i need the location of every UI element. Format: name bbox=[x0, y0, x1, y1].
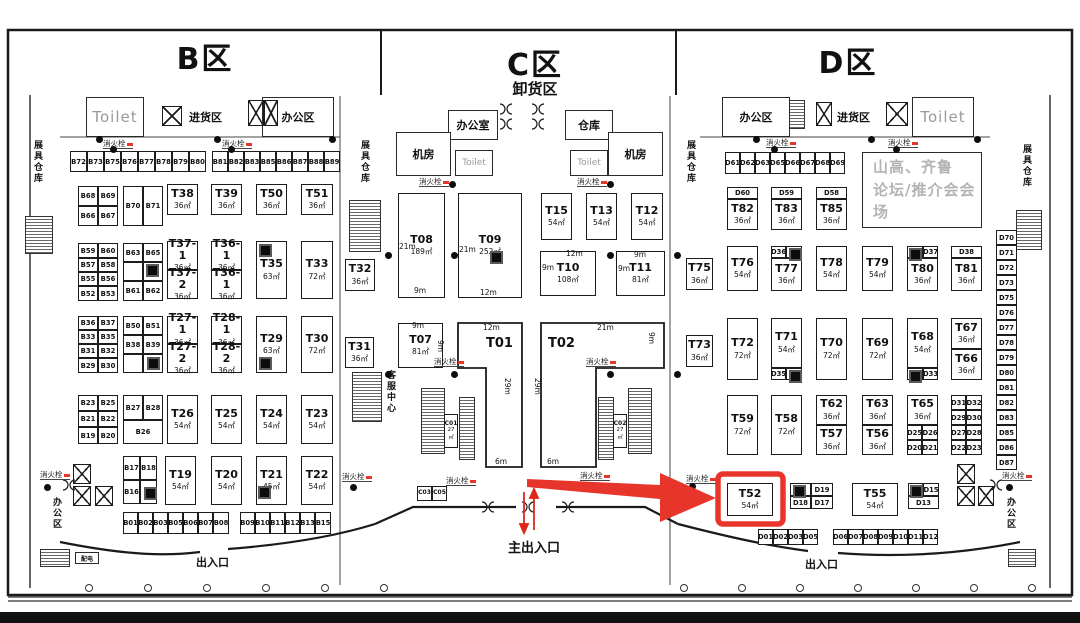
cell-D77: D77 bbox=[996, 320, 1017, 335]
dim-label: 21m bbox=[399, 242, 416, 251]
booth-T65: T6536㎡ bbox=[907, 395, 938, 425]
fire-hydrant-label: 消火栓 bbox=[342, 472, 372, 482]
stairs-hatch bbox=[421, 388, 445, 454]
booth-id: T13 bbox=[590, 205, 613, 217]
booth-id: T59 bbox=[731, 413, 754, 425]
dim-label: 12m bbox=[566, 249, 583, 258]
booth-size: 36㎡ bbox=[174, 200, 191, 211]
booth-size: 36㎡ bbox=[823, 411, 840, 422]
stairs-hatch bbox=[352, 372, 382, 422]
booth-T26: T2654㎡ bbox=[167, 395, 198, 444]
fire-hydrant-label: 消火栓 bbox=[40, 470, 70, 480]
cell-B68: B68 bbox=[78, 186, 98, 206]
cell-D38: D38 bbox=[951, 246, 982, 258]
elevator-icon bbox=[886, 102, 908, 126]
elevator-icon bbox=[248, 100, 264, 126]
cell-B36: B36 bbox=[78, 316, 98, 330]
booth-size: 72㎡ bbox=[778, 426, 795, 437]
booth-size: 36㎡ bbox=[308, 200, 325, 211]
booth-id: T58 bbox=[775, 413, 798, 425]
elevator-icon bbox=[162, 106, 182, 126]
booth-T28-2: T28-236㎡ bbox=[211, 344, 242, 373]
booth-T85: T8536㎡ bbox=[816, 199, 847, 230]
booth-size: 36㎡ bbox=[218, 291, 235, 302]
cell-B70: B70 bbox=[123, 186, 143, 226]
booth-id: T19 bbox=[169, 469, 192, 481]
cell-B12: B12 bbox=[285, 512, 300, 534]
cell-B59: B59 bbox=[78, 243, 98, 258]
booth-size: 36㎡ bbox=[734, 215, 751, 226]
main-entrance-label: 主出入口 bbox=[508, 537, 560, 556]
column-dot bbox=[674, 371, 681, 378]
cell-D01: D01 bbox=[758, 529, 773, 545]
booth-id: T30 bbox=[306, 333, 329, 345]
room-仓库: 仓库 bbox=[565, 110, 613, 140]
elevator-icon bbox=[816, 102, 832, 126]
cell-D58: D58 bbox=[816, 187, 847, 199]
booth-id: T82 bbox=[731, 203, 754, 215]
cell-D08: D08 bbox=[863, 529, 878, 545]
booth-T39: T3936㎡ bbox=[211, 184, 242, 215]
cell-B29: B29 bbox=[78, 358, 98, 373]
booth-size: 54㎡ bbox=[914, 344, 931, 355]
column-dot bbox=[451, 371, 458, 378]
booth-size: 54㎡ bbox=[218, 420, 235, 431]
cell-D25: D25 bbox=[907, 425, 922, 440]
booth-id: T09 bbox=[479, 234, 502, 246]
stairs-hatch bbox=[1008, 549, 1036, 567]
vertical-label-展具仓库: 展具仓库 bbox=[1020, 144, 1033, 188]
booth-T75: T7536㎡ bbox=[686, 258, 713, 290]
cell-B89: B89 bbox=[324, 151, 340, 172]
cell-D65: D65 bbox=[770, 152, 785, 174]
fire-cabinet-icon bbox=[909, 370, 922, 383]
booth-size: 54㎡ bbox=[866, 500, 883, 511]
dim-label: 9m bbox=[414, 286, 426, 295]
fire-cabinet-icon bbox=[490, 251, 503, 264]
booth-size: 108㎡ bbox=[557, 274, 579, 285]
booth-id: T80 bbox=[911, 263, 934, 275]
column-dot bbox=[385, 252, 392, 259]
cell-B62: B62 bbox=[143, 281, 163, 301]
cell-B26: B26 bbox=[123, 420, 163, 444]
booth-id: T76 bbox=[731, 257, 754, 269]
booth-id: T11 bbox=[629, 262, 652, 274]
column-dot bbox=[771, 146, 778, 153]
booth-T66: T6636㎡ bbox=[951, 349, 982, 380]
booth-T68: T6854㎡ bbox=[907, 318, 938, 368]
cell-D37: D37 bbox=[923, 246, 938, 258]
cell-D36: D36 bbox=[771, 246, 786, 258]
vertical-label-办公区: 办公区 bbox=[1004, 497, 1017, 530]
cell-B66: B66 bbox=[78, 206, 98, 226]
cell-D81: D81 bbox=[996, 380, 1017, 395]
cell-B88: B88 bbox=[308, 151, 324, 172]
booth-id: T32 bbox=[349, 263, 372, 275]
fire-cabinet-icon bbox=[909, 248, 922, 261]
booth-size: 72㎡ bbox=[734, 350, 751, 361]
fire-cabinet-icon bbox=[789, 370, 802, 383]
cell-D32: D32 bbox=[966, 395, 982, 410]
cell-D10: D10 bbox=[893, 529, 908, 545]
cell-D68: D68 bbox=[815, 152, 830, 174]
booth-size: 36㎡ bbox=[263, 200, 280, 211]
booth-id: T73 bbox=[688, 339, 711, 351]
dim-label: 9m bbox=[634, 250, 646, 259]
booth-T59: T5972㎡ bbox=[727, 395, 758, 455]
booth-T82: T8236㎡ bbox=[727, 199, 758, 230]
booth-T69: T6972㎡ bbox=[862, 318, 893, 380]
booth-size: 36㎡ bbox=[174, 365, 191, 376]
booth-size: 54㎡ bbox=[218, 481, 235, 492]
booth-T50: T5036㎡ bbox=[256, 184, 287, 215]
booth-size: 54㎡ bbox=[593, 217, 610, 228]
cell-D85: D85 bbox=[996, 425, 1017, 440]
cell-B81: B81 bbox=[212, 151, 228, 172]
cell-B20: B20 bbox=[98, 427, 118, 444]
cell-B82: B82 bbox=[228, 151, 244, 172]
cell-B13: B13 bbox=[300, 512, 315, 534]
booth-id: T22 bbox=[306, 469, 329, 481]
booth-id: T50 bbox=[260, 188, 283, 200]
cell-D22: D22 bbox=[951, 440, 966, 455]
cell-D19: D19 bbox=[811, 483, 833, 496]
cell-blank bbox=[123, 354, 143, 373]
column-circle bbox=[680, 584, 688, 592]
booth-T55: T5554㎡ bbox=[852, 483, 898, 516]
cell-B07: B07 bbox=[198, 512, 213, 534]
floor-plan: B区 C区 D区 卸货区 主出入口 出入口 出入口 山高、齐鲁 论坛/推介会会场… bbox=[0, 0, 1080, 623]
cell-B87: B87 bbox=[292, 151, 308, 172]
column-circle bbox=[796, 584, 804, 592]
cell-B16: B16 bbox=[123, 480, 140, 504]
cell-D21: D21 bbox=[922, 440, 938, 455]
booth-size: 54㎡ bbox=[548, 217, 565, 228]
cell-D31: D31 bbox=[951, 395, 966, 410]
booth-id: T23 bbox=[306, 408, 329, 420]
cell-B85: B85 bbox=[260, 151, 276, 172]
zone-header-b: B区 bbox=[170, 34, 240, 78]
column-circle bbox=[144, 584, 152, 592]
cell-D78: D78 bbox=[996, 335, 1017, 350]
booth-T67: T6736㎡ bbox=[951, 318, 982, 349]
column-circle bbox=[321, 584, 329, 592]
cell-D67: D67 bbox=[800, 152, 815, 174]
booth-id: T65 bbox=[911, 398, 934, 410]
fire-cabinet-icon bbox=[793, 485, 806, 498]
cell-D69: D69 bbox=[830, 152, 845, 174]
dim-label: 21m bbox=[459, 245, 476, 254]
booth-T62: T6236㎡ bbox=[816, 395, 847, 425]
booth-id: T55 bbox=[864, 488, 887, 500]
booth-id: T24 bbox=[260, 408, 283, 420]
cell-B11: B11 bbox=[270, 512, 285, 534]
booth-T72: T7272㎡ bbox=[727, 318, 758, 380]
booth-id: T27-1 bbox=[168, 312, 197, 335]
booth-id: C03 bbox=[418, 490, 431, 496]
booth-size: 81㎡ bbox=[632, 274, 649, 285]
booth-size: 81㎡ bbox=[412, 346, 429, 357]
cell-B72: B72 bbox=[70, 151, 87, 172]
booth-T33: T3372㎡ bbox=[301, 241, 333, 299]
booth-id: T26 bbox=[171, 408, 194, 420]
cell-B58: B58 bbox=[98, 258, 118, 272]
booth-id: T57 bbox=[820, 428, 843, 440]
booth-id: T36-1 bbox=[212, 267, 241, 290]
booth-size: 36㎡ bbox=[914, 275, 931, 286]
booth-size: 54㎡ bbox=[823, 269, 840, 280]
fire-cabinet-icon bbox=[258, 486, 271, 499]
cell-D62: D62 bbox=[740, 152, 755, 174]
cell-B67: B67 bbox=[98, 206, 118, 226]
cell-D83: D83 bbox=[996, 410, 1017, 425]
room-机房: 机房 bbox=[396, 132, 451, 176]
cell-B76: B76 bbox=[121, 151, 138, 172]
column-dot bbox=[607, 371, 614, 378]
column-dot bbox=[110, 146, 117, 153]
stairs-hatch bbox=[598, 397, 614, 460]
column-dot bbox=[1006, 484, 1013, 491]
cell-D02: D02 bbox=[773, 529, 788, 545]
dim-label: 6m bbox=[547, 457, 559, 466]
elevator-icon bbox=[957, 464, 975, 484]
cell-B79: B79 bbox=[172, 151, 189, 172]
hydrant-red-mark bbox=[912, 142, 918, 145]
hydrant-red-mark bbox=[790, 142, 796, 145]
booth-size: 63㎡ bbox=[263, 271, 280, 282]
cell-B50: B50 bbox=[123, 316, 143, 335]
booth-id: T71 bbox=[775, 331, 798, 343]
room-进货区: 进货区 bbox=[826, 99, 881, 135]
booth-id: T81 bbox=[955, 263, 978, 275]
cell-B01: B01 bbox=[123, 512, 138, 534]
booth-T31: T3136㎡ bbox=[345, 337, 374, 368]
booth-size: 36㎡ bbox=[218, 200, 235, 211]
booth-T15: T1554㎡ bbox=[541, 193, 572, 240]
booth-id: T68 bbox=[911, 331, 934, 343]
booth-id: T52 bbox=[739, 488, 762, 500]
vertical-label-展具仓库: 展具仓库 bbox=[684, 140, 697, 184]
booth-T80: T8036㎡ bbox=[907, 258, 938, 291]
booth-T30: T3072㎡ bbox=[301, 316, 333, 373]
cell-B63: B63 bbox=[123, 243, 143, 262]
room-Toilet: Toilet bbox=[455, 150, 493, 176]
fire-hydrant-label: 消火栓 bbox=[419, 177, 449, 187]
booth-size: 72㎡ bbox=[823, 350, 840, 361]
dim-label: 29m bbox=[503, 378, 512, 395]
elevator-icon bbox=[73, 486, 91, 506]
booth-size: 72㎡ bbox=[308, 345, 325, 356]
column-dot bbox=[607, 181, 614, 188]
booth-T38: T3836㎡ bbox=[167, 184, 198, 215]
room-Toilet: Toilet bbox=[912, 97, 974, 137]
fire-cabinet-icon bbox=[146, 264, 159, 277]
booth-T56: T5636㎡ bbox=[862, 425, 893, 455]
cell-D82: D82 bbox=[996, 395, 1017, 410]
cell-B27: B27 bbox=[123, 395, 143, 420]
booth-size: 36㎡ bbox=[958, 334, 975, 345]
booth-size: 54㎡ bbox=[263, 420, 280, 431]
booth-id: T31 bbox=[348, 341, 371, 353]
booth-T37-2: T37-236㎡ bbox=[167, 270, 198, 299]
booth-size: 27㎡ bbox=[445, 427, 457, 441]
cell-D80: D80 bbox=[996, 365, 1017, 380]
booth-size: 36㎡ bbox=[351, 276, 368, 287]
cell-D26: D26 bbox=[922, 425, 938, 440]
cell-D09: D09 bbox=[878, 529, 893, 545]
fire-hydrant-label: 消火栓 bbox=[446, 476, 476, 486]
booth-T32: T3236㎡ bbox=[345, 259, 375, 291]
hydrant-red-mark bbox=[366, 476, 372, 479]
column-circle bbox=[738, 584, 746, 592]
hydrant-red-mark bbox=[127, 143, 133, 146]
dim-label: 12m bbox=[483, 323, 500, 332]
booth-id: T70 bbox=[820, 337, 843, 349]
column-dot bbox=[44, 484, 51, 491]
elevator-icon bbox=[957, 486, 975, 506]
booth-size: 72㎡ bbox=[869, 350, 886, 361]
cell-B31: B31 bbox=[78, 344, 98, 358]
booth-size: 36㎡ bbox=[823, 215, 840, 226]
vertical-label-展具仓库: 展具仓库 bbox=[358, 140, 371, 184]
cell-B08: B08 bbox=[213, 512, 229, 534]
booth-id: T67 bbox=[955, 322, 978, 334]
column-circle bbox=[262, 584, 270, 592]
booth-size: 36㎡ bbox=[351, 353, 368, 364]
booth-size: 54㎡ bbox=[638, 217, 655, 228]
cell-D03: D03 bbox=[788, 529, 803, 545]
booth-T12: T1254㎡ bbox=[631, 193, 663, 240]
column-dot bbox=[893, 146, 900, 153]
booth-id: T77 bbox=[775, 263, 798, 275]
fire-cabinet-icon bbox=[789, 248, 802, 261]
hydrant-red-mark bbox=[458, 361, 464, 364]
cell-B55: B55 bbox=[78, 272, 98, 286]
cell-B17: B17 bbox=[123, 456, 140, 480]
booth-id: T28-2 bbox=[212, 341, 241, 364]
fire-cabinet-icon bbox=[259, 244, 272, 257]
forum-line2: 论坛/推介会会场 bbox=[873, 179, 981, 224]
column-dot bbox=[96, 136, 103, 143]
cell-D33: D33 bbox=[923, 368, 938, 380]
cell-B19: B19 bbox=[78, 427, 98, 444]
booth-size: 54㎡ bbox=[174, 420, 191, 431]
booth-size: 54㎡ bbox=[734, 269, 751, 280]
fire-hydrant-label: 消火栓 bbox=[766, 138, 796, 148]
cell-B69: B69 bbox=[98, 186, 118, 206]
cell-B53: B53 bbox=[98, 286, 118, 301]
booth-id: T27-2 bbox=[168, 341, 197, 364]
hydrant-red-mark bbox=[443, 181, 449, 184]
booth-id: T25 bbox=[215, 408, 238, 420]
cell-D63: D63 bbox=[755, 152, 770, 174]
dim-label: 9m bbox=[647, 332, 656, 344]
cell-B83: B83 bbox=[244, 151, 260, 172]
booth-id: T29 bbox=[260, 333, 283, 345]
cell-B56: B56 bbox=[98, 272, 118, 286]
cell-D05: D05 bbox=[803, 529, 818, 545]
booth-id: T85 bbox=[820, 203, 843, 215]
column-dot bbox=[350, 484, 357, 491]
booth-T83: T8336㎡ bbox=[771, 199, 802, 230]
cell-D61: D61 bbox=[725, 152, 740, 174]
booth-id: T07 bbox=[409, 334, 432, 346]
cell-B57: B57 bbox=[78, 258, 98, 272]
booth-size: 36㎡ bbox=[869, 441, 886, 452]
booth-size: 36㎡ bbox=[914, 411, 931, 422]
column-dot bbox=[607, 252, 614, 259]
booth-id: T37-2 bbox=[168, 267, 197, 290]
booth-T24: T2454㎡ bbox=[256, 395, 287, 444]
room-配电: 配电 bbox=[75, 552, 99, 564]
cell-B09: B09 bbox=[240, 512, 255, 534]
stairs-hatch bbox=[788, 100, 805, 129]
hydrant-red-mark bbox=[710, 478, 716, 481]
elevator-icon bbox=[73, 464, 91, 484]
cell-B52: B52 bbox=[78, 286, 98, 301]
booth-T36-1: T36-136㎡ bbox=[211, 270, 242, 299]
dim-label: 12m bbox=[480, 288, 497, 297]
column-dot bbox=[385, 371, 392, 378]
booth-size: 54㎡ bbox=[308, 481, 325, 492]
cell-B03: B03 bbox=[153, 512, 168, 534]
booth-id: T12 bbox=[636, 205, 659, 217]
cell-B25: B25 bbox=[98, 395, 118, 411]
fire-hydrant-label: 消火栓 bbox=[222, 139, 252, 149]
stairs-hatch bbox=[349, 200, 381, 252]
column-dot bbox=[449, 181, 456, 188]
forum-line1: 山高、齐鲁 bbox=[873, 156, 953, 179]
fire-hydrant-label: 消火栓 bbox=[577, 177, 607, 187]
hydrant-red-mark bbox=[470, 480, 476, 483]
column-dot bbox=[329, 136, 336, 143]
column-circle bbox=[1028, 584, 1036, 592]
cell-B30: B30 bbox=[98, 358, 118, 373]
booth-size: 36㎡ bbox=[778, 215, 795, 226]
booth-id-T01: T01 bbox=[486, 336, 513, 351]
dim-label: 9m bbox=[436, 340, 445, 352]
hydrant-red-mark bbox=[1026, 475, 1032, 478]
dim-label: 21m bbox=[597, 323, 614, 332]
booth-size: 54㎡ bbox=[172, 481, 189, 492]
booth-T20: T2054㎡ bbox=[211, 456, 242, 505]
cell-D23: D23 bbox=[966, 440, 982, 455]
booth-T57: T5736㎡ bbox=[816, 425, 847, 455]
booth-T51: T5136㎡ bbox=[301, 184, 333, 215]
column-dot bbox=[868, 136, 875, 143]
cell-D79: D79 bbox=[996, 350, 1017, 365]
hydrant-red-mark bbox=[246, 143, 252, 146]
room-Toilet: Toilet bbox=[86, 97, 144, 137]
cell-B35: B35 bbox=[98, 330, 118, 344]
dim-label: 9m bbox=[412, 321, 424, 330]
cell-B10: B10 bbox=[255, 512, 270, 534]
booth-T70: T7072㎡ bbox=[816, 318, 847, 380]
column-dot bbox=[689, 483, 696, 490]
booth-id: T75 bbox=[688, 262, 711, 274]
booth-size: 63㎡ bbox=[263, 345, 280, 356]
cell-B32: B32 bbox=[98, 344, 118, 358]
booth-T79: T7954㎡ bbox=[862, 246, 893, 291]
entrance-left-label: 出入口 bbox=[196, 554, 229, 570]
booth-id: C05 bbox=[433, 490, 446, 496]
booth-T76: T7654㎡ bbox=[727, 246, 758, 291]
column-dot bbox=[753, 136, 760, 143]
elevator-icon bbox=[264, 100, 278, 126]
fire-hydrant-label: 消火栓 bbox=[888, 138, 918, 148]
booth-size: 54㎡ bbox=[869, 269, 886, 280]
booth-id: T37-1 bbox=[168, 238, 197, 261]
